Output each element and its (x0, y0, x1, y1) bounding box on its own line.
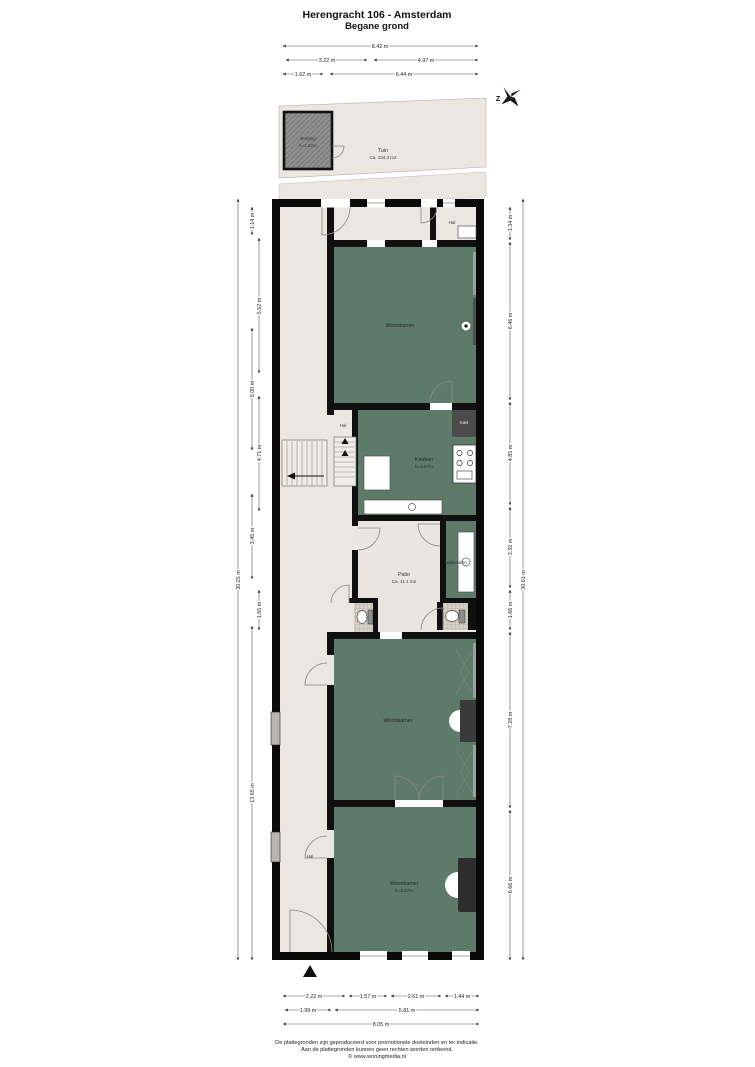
dim-top-right: 4.97 m (418, 58, 435, 64)
dim-left-seg: 1.65 m (257, 601, 263, 618)
dim-top-total: 8.42 m (372, 44, 389, 50)
tuin-label: Tuin (378, 148, 388, 154)
dimensions-bottom: 2.22 m 1.57 m 2.61 m 1.44 m 1.99 m 5.81 … (283, 994, 479, 1028)
footer-line-2: Aan de plattegronden kunnen geen rechten… (301, 1047, 454, 1053)
building: Hal Woonkamer Hal Keuken h=2.87m Kast Pa… (271, 199, 482, 977)
tuin-area: Ca. 104.3 m2 (369, 155, 397, 160)
room-label-patio-area: Ca. 11.1 m2 (392, 579, 417, 584)
page-subtitle: Begane grond (345, 21, 409, 32)
dim-bottom-seg: 1.57 m (360, 994, 377, 1000)
column-icon (461, 321, 471, 331)
dim-right-total: 30.61 m (521, 570, 527, 590)
footer-line-1: De plattegronden zijn geproduceerd voor … (275, 1040, 479, 1046)
dimensions-top: 8.42 m 3.22 m 4.97 m 1.62 m 6.44 m (283, 44, 478, 78)
dim-top-right2: 6.44 m (396, 72, 413, 78)
kitchen-sink-icon (409, 504, 416, 511)
dim-bottom-total: 8.05 m (373, 1022, 390, 1028)
dimensions-right: 30.61 m 1.34 m 6.46 m 4.85 m 3.32 m 1.66… (508, 199, 527, 960)
berging-label: Berging (300, 136, 316, 141)
floorplan-page: Herengracht 106 - Amsterdam Begane grond… (0, 0, 755, 1067)
dim-left-seg: 1.14 m (250, 212, 256, 229)
toilet-bowl-icon (446, 611, 459, 622)
room-label-hal-mid: Hal (340, 423, 347, 428)
room-label-woonkamer-1: Woonkamer (386, 323, 415, 329)
toilet-bowl-icon (357, 611, 367, 624)
entrance-arrow-icon (303, 965, 317, 977)
footer-line-3: © www.woningmedia.nl (348, 1053, 406, 1060)
dim-bottom-seg: 2.22 m (306, 994, 323, 1000)
room-label-woonkamer-3-height: h=4.17m (395, 888, 413, 893)
dim-left-seg: 4.71 m (257, 444, 263, 461)
side-window (271, 712, 280, 745)
room-label-patio: Patio (398, 572, 410, 578)
kitchen-counter (364, 500, 442, 514)
room-label-woonkamer-3: Woonkamer (390, 881, 419, 887)
dim-right-seg: 1.66 m (508, 601, 514, 618)
dim-right-seg: 3.32 m (508, 538, 514, 555)
meter-box (458, 226, 476, 238)
dimensions-left: 30.25 m 1.14 m 5.52 m 5.00 m 4.71 m 3.45… (236, 199, 263, 960)
floorplan-drawing: Herengracht 106 - Amsterdam Begane grond… (0, 0, 755, 1067)
dim-left-seg: 5.00 m (250, 380, 256, 397)
toilet-right (443, 602, 468, 630)
dim-top-left: 3.22 m (319, 58, 336, 64)
dim-bottom-seg: 2.61 m (408, 994, 425, 1000)
kitchen-island (364, 456, 390, 490)
side-door (271, 832, 280, 862)
room-label-keuken: Keuken (415, 457, 433, 463)
garden: Berging h=1.92m Tuin Ca. 104.3 m2 (279, 98, 486, 207)
room-woonkamer-1 (334, 240, 477, 403)
footer-disclaimer: De plattegronden zijn geproduceerd voor … (275, 1040, 479, 1060)
dim-right-seg: 6.66 m (508, 876, 514, 893)
dim-left-seg: 5.52 m (257, 297, 263, 314)
dim-right-seg: 4.85 m (508, 444, 514, 461)
dim-left-seg: 3.45 m (250, 527, 256, 544)
dim-right-seg: 7.28 m (508, 711, 514, 728)
toilet-left (354, 603, 373, 632)
berging-height: h=1.92m (299, 143, 317, 148)
dim-right-seg: 1.34 m (508, 214, 514, 231)
dim-right-seg: 6.46 m (508, 312, 514, 329)
dim-left-seg: 13.65 m (250, 783, 256, 803)
room-label-woonkamer-2: Woonkamer (384, 718, 413, 724)
staircase-main (282, 440, 327, 486)
staircase-small (334, 437, 356, 486)
dim-bottom-seg: 1.44 m (454, 994, 471, 1000)
page-title: Herengracht 106 - Amsterdam (303, 9, 452, 21)
dim-left-total: 30.25 m (236, 570, 242, 590)
room-label-hal-top: Hal (449, 220, 456, 225)
dim-bottom-seg: 5.81 m (399, 1008, 416, 1014)
stove-icon (453, 445, 476, 483)
room-label-kast: Kast (460, 420, 469, 425)
compass: Z (494, 80, 528, 114)
room-label-hal-bottom: Hal (307, 854, 314, 859)
room-label-keuken-height: h=2.87m (415, 464, 433, 469)
compass-letter: Z (496, 96, 501, 103)
dim-top-left2: 1.62 m (295, 72, 312, 78)
dim-bottom-seg: 1.99 m (300, 1008, 317, 1014)
room-label-bijkeuken: Bijkeuken (447, 560, 467, 565)
